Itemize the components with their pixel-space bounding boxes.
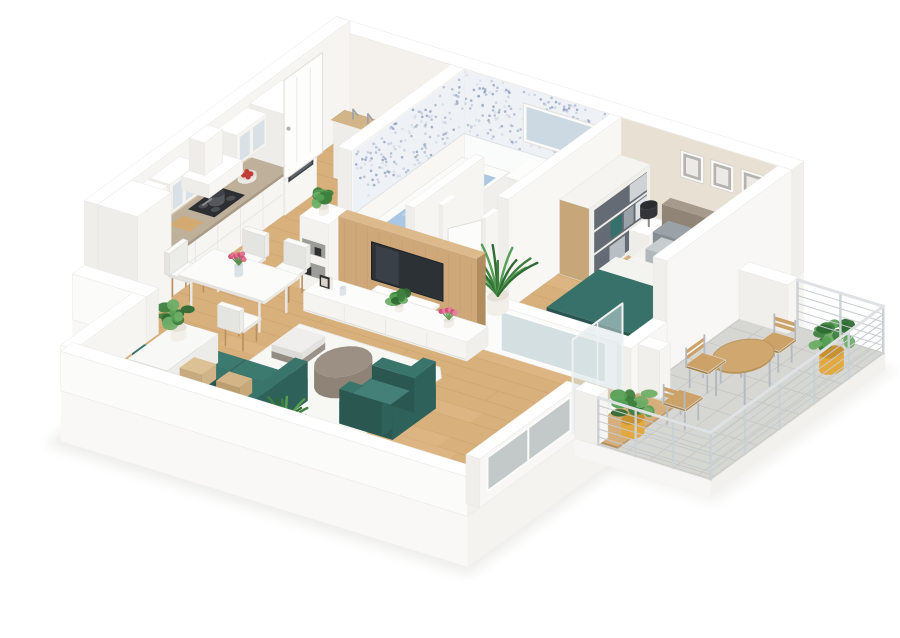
floorplan-figure bbox=[0, 0, 900, 638]
balcony-stub-wall bbox=[575, 382, 608, 446]
bedside-lamp bbox=[640, 200, 657, 219]
floorplan-3d-svg bbox=[0, 0, 900, 638]
door-handle bbox=[286, 127, 290, 131]
decor-glass bbox=[340, 286, 347, 296]
tv-screen-gloss bbox=[376, 245, 399, 286]
